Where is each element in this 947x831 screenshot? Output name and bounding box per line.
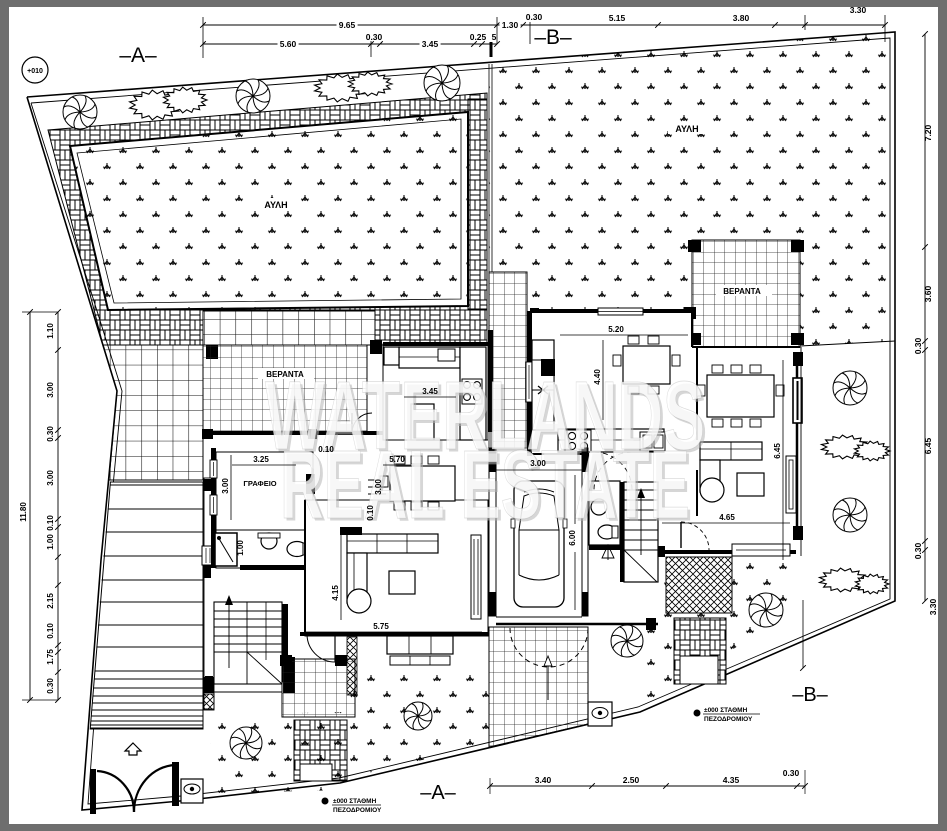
svg-text:REAL ESTATE: REAL ESTATE bbox=[280, 430, 690, 539]
svg-text:0.10: 0.10 bbox=[366, 505, 375, 521]
svg-text:3.00: 3.00 bbox=[46, 382, 55, 398]
svg-text:–B–: –B– bbox=[792, 684, 828, 706]
svg-text:0.30: 0.30 bbox=[913, 337, 923, 354]
svg-text:1.30: 1.30 bbox=[502, 20, 519, 30]
svg-text:0.10: 0.10 bbox=[46, 623, 55, 639]
svg-text:0.10: 0.10 bbox=[46, 515, 55, 531]
svg-text:4.40: 4.40 bbox=[593, 369, 602, 385]
svg-text:0.30: 0.30 bbox=[46, 678, 55, 694]
svg-text:0.30: 0.30 bbox=[366, 32, 383, 42]
svg-text:ΓΡΑΦΕΙΟ: ΓΡΑΦΕΙΟ bbox=[243, 479, 276, 488]
svg-text:ΑΥΛΗ: ΑΥΛΗ bbox=[675, 124, 698, 134]
svg-text:9.65: 9.65 bbox=[339, 20, 356, 30]
svg-text:–A–: –A– bbox=[420, 782, 456, 804]
svg-text:±000 ΣΤΑΘΜΗ: ±000 ΣΤΑΘΜΗ bbox=[333, 798, 377, 805]
svg-text:11.80: 11.80 bbox=[19, 502, 28, 522]
svg-text:0.10: 0.10 bbox=[318, 445, 334, 454]
svg-text:6.45: 6.45 bbox=[923, 437, 933, 454]
svg-text:5.75: 5.75 bbox=[373, 622, 389, 631]
svg-text:3.00: 3.00 bbox=[374, 479, 383, 495]
svg-text:5.60: 5.60 bbox=[280, 39, 297, 49]
svg-text:+010: +010 bbox=[27, 68, 43, 75]
svg-text:3.60: 3.60 bbox=[923, 285, 933, 302]
svg-text:3.25: 3.25 bbox=[253, 455, 269, 464]
svg-text:0.30: 0.30 bbox=[526, 12, 543, 22]
svg-text:ΠΕΖΟΔΡΟΜΙΟΥ: ΠΕΖΟΔΡΟΜΙΟΥ bbox=[704, 716, 753, 723]
svg-text:4.35: 4.35 bbox=[723, 775, 740, 785]
svg-text:4.15: 4.15 bbox=[331, 585, 340, 601]
svg-text:±000 ΣΤΑΘΜΗ: ±000 ΣΤΑΘΜΗ bbox=[704, 707, 748, 714]
svg-text:6.00: 6.00 bbox=[568, 530, 577, 546]
svg-text:3.45: 3.45 bbox=[422, 387, 438, 396]
svg-text:ΠΕΖΟΔΡΟΜΙΟΥ: ΠΕΖΟΔΡΟΜΙΟΥ bbox=[333, 807, 382, 814]
svg-text:5.15: 5.15 bbox=[609, 13, 626, 23]
svg-text:3.00: 3.00 bbox=[221, 478, 230, 494]
svg-text:7.20: 7.20 bbox=[923, 124, 933, 141]
svg-text:2.15: 2.15 bbox=[46, 593, 55, 609]
svg-text:4.65: 4.65 bbox=[719, 513, 735, 522]
svg-text:–A–: –A– bbox=[119, 44, 157, 67]
svg-text:6.45: 6.45 bbox=[773, 443, 782, 459]
svg-text:1.00: 1.00 bbox=[46, 534, 55, 550]
svg-text:3.45: 3.45 bbox=[422, 39, 439, 49]
svg-text:2.50: 2.50 bbox=[623, 775, 640, 785]
svg-text:0.30: 0.30 bbox=[46, 426, 55, 442]
svg-text:1.75: 1.75 bbox=[46, 649, 55, 665]
svg-text:3.40: 3.40 bbox=[535, 775, 552, 785]
svg-text:5: 5 bbox=[492, 32, 497, 42]
svg-text:0.30: 0.30 bbox=[913, 542, 923, 559]
svg-text:1.00: 1.00 bbox=[236, 540, 245, 556]
svg-text:3.80: 3.80 bbox=[733, 13, 750, 23]
svg-text:ΒΕΡΑΝΤΑ: ΒΕΡΑΝΤΑ bbox=[723, 287, 761, 296]
svg-text:3.30: 3.30 bbox=[928, 598, 938, 615]
svg-text:0.30: 0.30 bbox=[783, 768, 800, 778]
svg-text:5.70: 5.70 bbox=[389, 455, 405, 464]
svg-text:3.00: 3.00 bbox=[530, 459, 546, 468]
svg-text:0.25: 0.25 bbox=[470, 32, 487, 42]
svg-text:5.20: 5.20 bbox=[608, 325, 624, 334]
svg-text:3.00: 3.00 bbox=[46, 470, 55, 486]
svg-text:–B–: –B– bbox=[534, 26, 572, 49]
svg-text:1.10: 1.10 bbox=[46, 323, 55, 339]
svg-text:ΑΥΛΗ: ΑΥΛΗ bbox=[264, 200, 287, 210]
